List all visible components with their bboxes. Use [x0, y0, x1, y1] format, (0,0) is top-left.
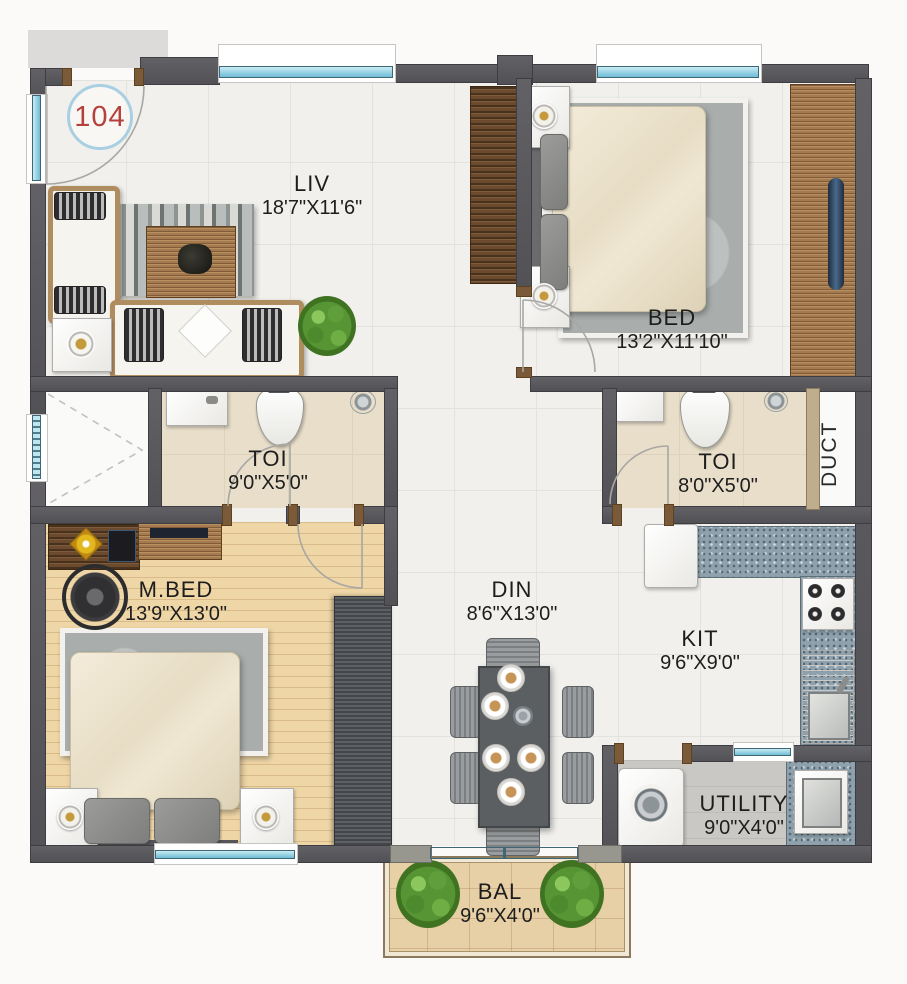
window-living-top — [218, 44, 396, 83]
plate — [497, 664, 525, 692]
room-dims: 18'7"X11'6" — [262, 196, 362, 220]
wall — [530, 376, 872, 392]
wall — [30, 478, 46, 863]
floor-foyer — [44, 388, 148, 508]
room-label-living: LIV 18'7"X11'6" — [262, 172, 362, 220]
plate — [482, 744, 510, 772]
door-frame — [516, 286, 532, 297]
door-frame — [516, 367, 532, 378]
dining-chair — [562, 686, 594, 738]
washbasin — [616, 388, 664, 422]
table-lamp — [253, 804, 279, 830]
room-dims: 9'0"X5'0" — [228, 471, 308, 495]
room-label-bedroom: BED 13'2"X11'10" — [616, 306, 728, 354]
bed-pillow — [540, 134, 568, 210]
basin-faucet — [206, 396, 218, 404]
wall — [688, 745, 737, 762]
door-frame — [612, 504, 622, 526]
sofa-pillow — [54, 192, 106, 220]
window-master-bottom — [154, 843, 298, 865]
refrigerator — [644, 524, 698, 588]
room-dims: 8'0"X5'0" — [678, 474, 758, 498]
door-frame — [134, 68, 144, 86]
unit-number: 104 — [74, 101, 125, 134]
door-frame — [682, 743, 692, 764]
window-living-left — [26, 94, 48, 184]
stove-burner — [831, 584, 845, 598]
door-frame — [222, 504, 232, 526]
laptop — [108, 530, 136, 562]
wall — [384, 388, 398, 512]
wardrobe-bedroom — [790, 84, 857, 384]
wall — [30, 506, 228, 524]
room-dims: 13'2"X11'10" — [616, 330, 728, 354]
door-frame — [614, 743, 624, 764]
wall — [294, 845, 392, 863]
room-name: DIN — [467, 578, 558, 602]
tv-unit — [470, 86, 518, 284]
room-name: DUCT — [818, 421, 841, 487]
room-label-utility: UTILITY 9'0"X4'0" — [700, 792, 789, 840]
room-label-balcony: BAL 9'6"X4'0" — [460, 880, 540, 928]
wardrobe-master — [334, 596, 392, 850]
door-frame — [354, 504, 364, 526]
stove-burner — [808, 607, 822, 621]
room-label-master-bedroom: M.BED 13'9"X13'0" — [125, 578, 227, 626]
room-dims: 13'9"X13'0" — [125, 602, 227, 626]
room-dims: 8'6"X13'0" — [467, 602, 558, 626]
utility-sink-basin — [802, 778, 842, 828]
unit-number-badge: 104 — [67, 84, 133, 150]
room-name: TOI — [228, 447, 308, 471]
table-lamp — [531, 103, 557, 129]
room-name: BAL — [460, 880, 540, 904]
wall — [670, 506, 872, 524]
bed-duvet — [552, 106, 706, 312]
plant-balcony-right — [540, 860, 604, 928]
shower-head — [350, 390, 376, 414]
room-name: KIT — [660, 627, 740, 651]
room-label-toilet-2: TOI 8'0"X5'0" — [678, 450, 758, 498]
wall — [757, 64, 869, 83]
bed-pillow — [540, 214, 568, 290]
window-entry-left — [26, 414, 48, 482]
master-bed-duvet — [70, 652, 240, 810]
window-bedroom-top — [596, 44, 762, 83]
sofa-pillow — [124, 308, 164, 362]
window-kitchen — [733, 742, 794, 762]
door-frame — [62, 68, 72, 86]
kitchen-counter-top — [694, 526, 857, 578]
stove-burner — [808, 584, 822, 598]
plant-balcony-left — [396, 860, 460, 928]
washbasin — [166, 390, 228, 426]
door-frame — [664, 504, 674, 526]
table-decor — [178, 244, 212, 274]
plant-living — [298, 296, 356, 356]
wall — [140, 57, 220, 85]
wall — [30, 376, 398, 392]
wall — [30, 845, 162, 863]
bed-pillow — [84, 798, 150, 844]
wall — [148, 388, 162, 512]
table-lamp — [57, 804, 83, 830]
room-name: BED — [616, 306, 728, 330]
wardrobe-handle — [828, 178, 844, 290]
wall — [384, 506, 398, 606]
sofa-pillow — [54, 286, 106, 314]
wall — [620, 845, 872, 863]
stove-burner — [831, 607, 845, 621]
room-dims: 9'6"X9'0" — [660, 651, 740, 675]
washer-drum — [630, 784, 672, 826]
room-name: TOI — [678, 450, 758, 474]
serving-bowl — [513, 706, 533, 726]
room-dims: 9'6"X4'0" — [460, 904, 540, 928]
balcony-pier — [390, 845, 432, 863]
cup — [67, 330, 95, 358]
plate — [497, 778, 525, 806]
bed-pillow — [154, 798, 220, 844]
dining-chair — [562, 752, 594, 804]
room-label-duct: DUCT — [818, 406, 848, 502]
table-lamp — [531, 283, 557, 309]
office-chair — [62, 564, 128, 630]
wall-living-bedroom — [516, 78, 532, 294]
balcony-sliding-door — [430, 847, 578, 859]
floor-plan: 104 LIV 18'7"X11'6" BED 13'2"X11'10" TOI… — [0, 0, 907, 984]
room-name: LIV — [262, 172, 362, 196]
balcony-pier — [578, 845, 622, 863]
tv — [150, 528, 208, 538]
door-frame — [288, 504, 298, 526]
sofa-pillow — [242, 308, 282, 362]
room-label-toilet-1: TOI 9'0"X5'0" — [228, 447, 308, 495]
kitchen-sink — [808, 692, 850, 740]
wall — [790, 745, 872, 762]
plate — [517, 744, 545, 772]
wall — [602, 388, 617, 512]
room-label-dining: DIN 8'6"X13'0" — [467, 578, 558, 626]
plate — [481, 692, 509, 720]
room-dims: 9'0"X4'0" — [700, 816, 789, 840]
gas-stove — [802, 578, 854, 630]
shower-head — [764, 390, 788, 412]
room-name: UTILITY — [700, 792, 789, 816]
room-name: M.BED — [125, 578, 227, 602]
room-label-kitchen: KIT 9'6"X9'0" — [660, 627, 740, 675]
